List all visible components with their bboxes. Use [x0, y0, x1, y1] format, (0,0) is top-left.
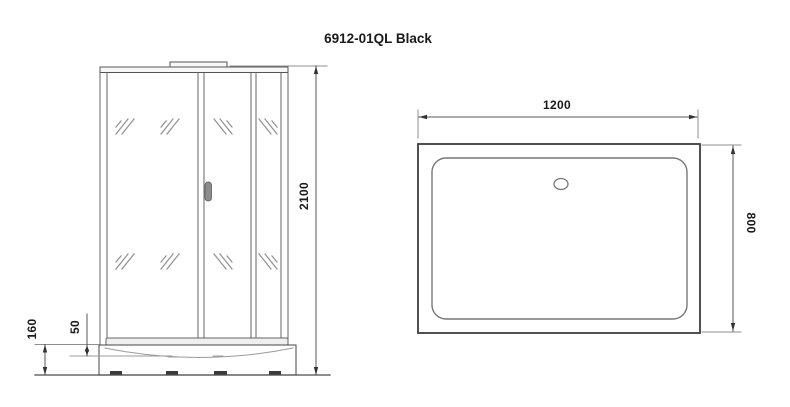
glass-hatch-icon [214, 119, 232, 134]
glass-hatch-icon [116, 119, 134, 134]
front-view-drawing: 2100 160 50 [25, 62, 330, 375]
glass-hatch-icon [161, 119, 179, 134]
glass-hatch-icon [259, 254, 277, 269]
extension-line [702, 145, 741, 332]
shower-tray-base [99, 345, 296, 375]
technical-drawing-page: 6912-01QL Black [0, 0, 790, 407]
dimension-label-height: 2100 [297, 182, 311, 210]
extension-line [418, 110, 698, 138]
page-title: 6912-01QL Black [324, 31, 432, 46]
glass-hatch-icon [116, 254, 134, 269]
arrowhead-down-icon [314, 367, 318, 375]
dimension-height-2100: 2100 [230, 66, 327, 375]
arrowhead-up-icon [314, 66, 318, 74]
arrowhead-down-icon [731, 323, 735, 331]
frame-verticals [100, 73, 288, 345]
glass-hatch-marks [116, 119, 277, 269]
arrowhead-right-icon [689, 115, 697, 119]
arrowhead-down-icon [43, 367, 47, 375]
drawing-svg: 6912-01QL Black [0, 0, 790, 407]
dimension-label-depth: 800 [744, 213, 758, 234]
arrowhead-up-icon [43, 345, 47, 353]
glass-hatch-icon [259, 119, 277, 134]
glass-hatch-icon [161, 254, 179, 269]
top-view-drawing: 1200 800 [418, 98, 758, 333]
top-frame-bar [100, 67, 288, 73]
drain-icon [554, 179, 568, 190]
bottom-rail [106, 338, 288, 345]
dimension-label-tray-height: 160 [25, 319, 39, 340]
dimension-depth-800: 800 [702, 145, 758, 332]
arrowhead-down-icon [85, 350, 89, 357]
door-handle [205, 182, 212, 201]
dimension-label-basin-depth: 50 [68, 320, 82, 334]
dimension-tray-height-160: 160 [25, 319, 99, 375]
arrowhead-left-icon [419, 115, 427, 119]
glass-hatch-icon [214, 254, 232, 269]
dimension-width-1200: 1200 [418, 98, 698, 138]
dimension-label-width: 1200 [543, 98, 571, 112]
arrowhead-up-icon [731, 146, 735, 154]
